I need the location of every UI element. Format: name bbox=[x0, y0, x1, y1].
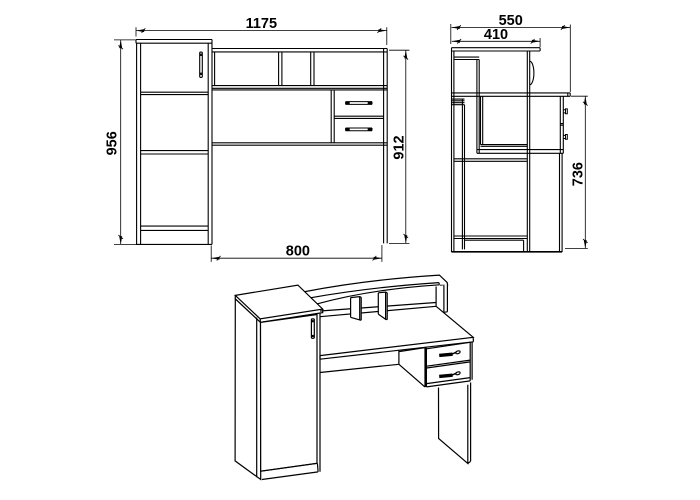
svg-text:800: 800 bbox=[286, 243, 310, 259]
svg-text:410: 410 bbox=[484, 27, 508, 43]
svg-text:956: 956 bbox=[104, 131, 120, 155]
svg-text:912: 912 bbox=[392, 135, 408, 159]
svg-text:1175: 1175 bbox=[246, 16, 277, 32]
svg-text:736: 736 bbox=[570, 162, 586, 186]
